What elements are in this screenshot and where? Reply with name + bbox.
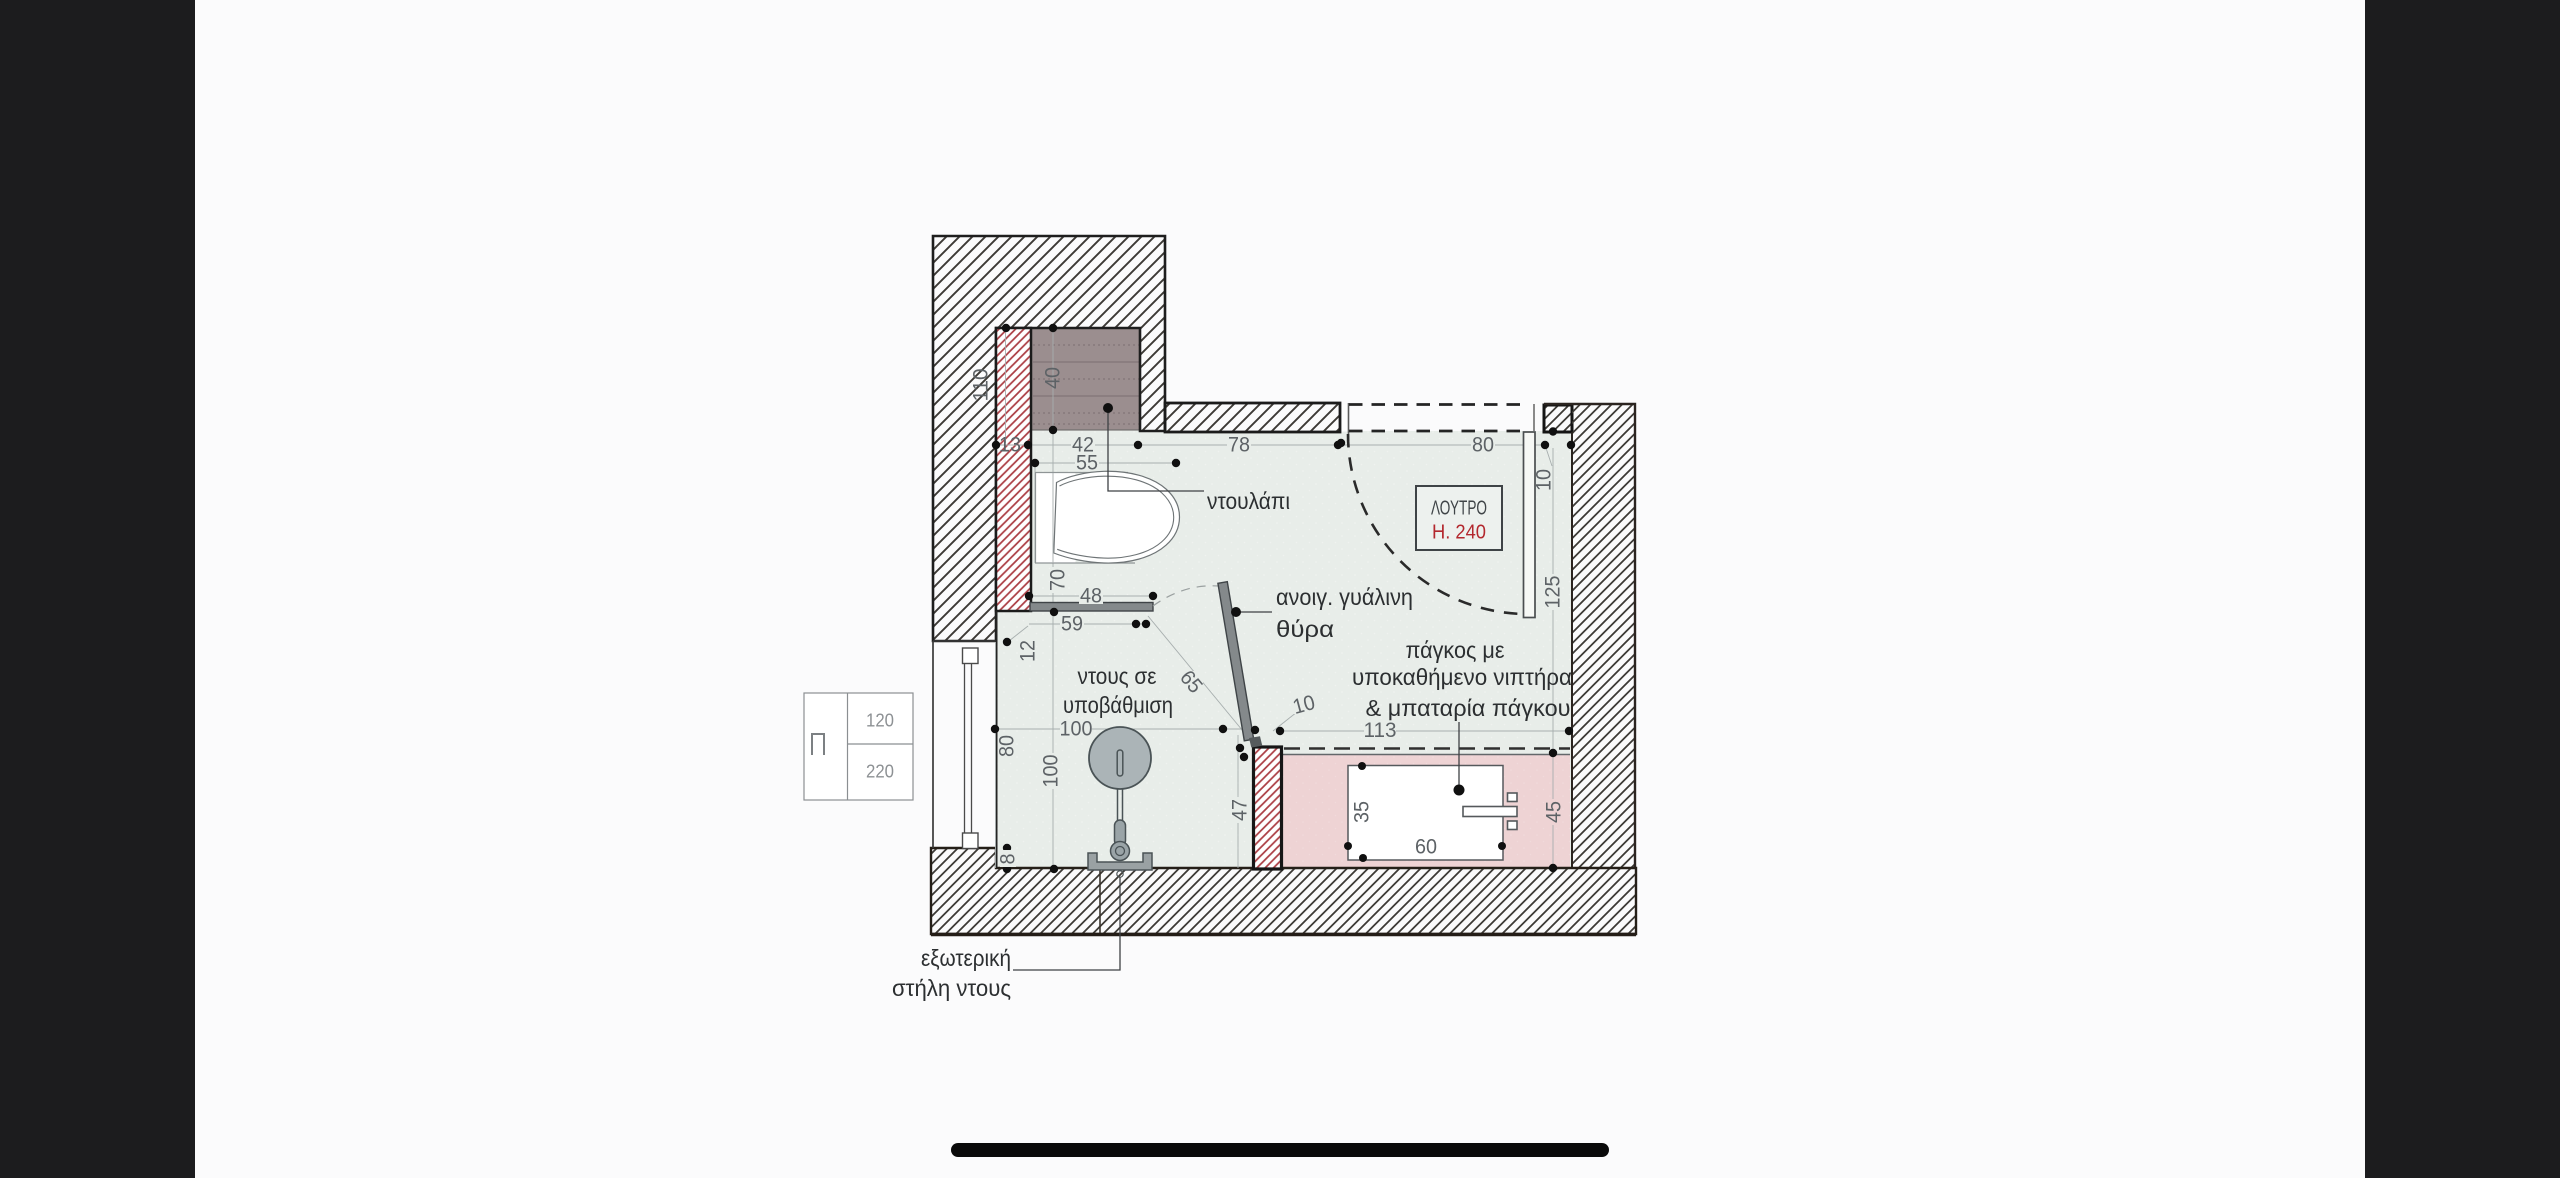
svg-text:εξωτερική: εξωτερική	[921, 945, 1011, 971]
svg-text:& μπαταρία πάγκου: & μπαταρία πάγκου	[1366, 695, 1571, 721]
svg-text:12: 12	[1017, 640, 1040, 662]
svg-text:220: 220	[866, 761, 894, 782]
svg-text:υποκαθήμενο νιπτήρα: υποκαθήμενο νιπτήρα	[1352, 664, 1572, 690]
svg-text:113: 113	[1364, 719, 1397, 742]
svg-text:70: 70	[1047, 569, 1070, 591]
svg-text:125: 125	[1542, 576, 1565, 609]
svg-text:60: 60	[1415, 836, 1437, 859]
svg-text:πάγκος με: πάγκος με	[1406, 637, 1505, 663]
svg-text:80: 80	[1472, 434, 1494, 457]
svg-text:θύρα: θύρα	[1276, 616, 1334, 642]
svg-text:ανοιγ. γυάλινη: ανοιγ. γυάλινη	[1276, 584, 1413, 610]
svg-text:59: 59	[1061, 613, 1083, 636]
svg-text:48: 48	[1080, 585, 1102, 608]
svg-text:ΛΟΥΤΡΟ: ΛΟΥΤΡΟ	[1431, 497, 1487, 520]
svg-text:40: 40	[1042, 367, 1065, 389]
svg-text:H. 240: H. 240	[1432, 521, 1486, 544]
svg-text:47: 47	[1229, 799, 1252, 821]
svg-text:υποβάθμιση: υποβάθμιση	[1063, 692, 1173, 718]
svg-text:100: 100	[1040, 755, 1063, 788]
svg-text:45: 45	[1543, 801, 1566, 823]
svg-text:35: 35	[1351, 801, 1374, 823]
svg-text:78: 78	[1228, 434, 1250, 457]
svg-text:8: 8	[997, 854, 1020, 865]
svg-text:ντουλάπι: ντουλάπι	[1207, 488, 1290, 514]
svg-text:13: 13	[999, 434, 1021, 457]
svg-text:100: 100	[1060, 718, 1093, 741]
svg-text:120: 120	[866, 710, 894, 731]
svg-text:10: 10	[1533, 469, 1556, 491]
svg-text:110: 110	[970, 369, 993, 402]
svg-text:80: 80	[996, 735, 1019, 757]
svg-text:στήλη ντους: στήλη ντους	[892, 975, 1011, 1001]
svg-text:ντους σε: ντους σε	[1078, 663, 1157, 689]
svg-text:55: 55	[1076, 452, 1098, 475]
